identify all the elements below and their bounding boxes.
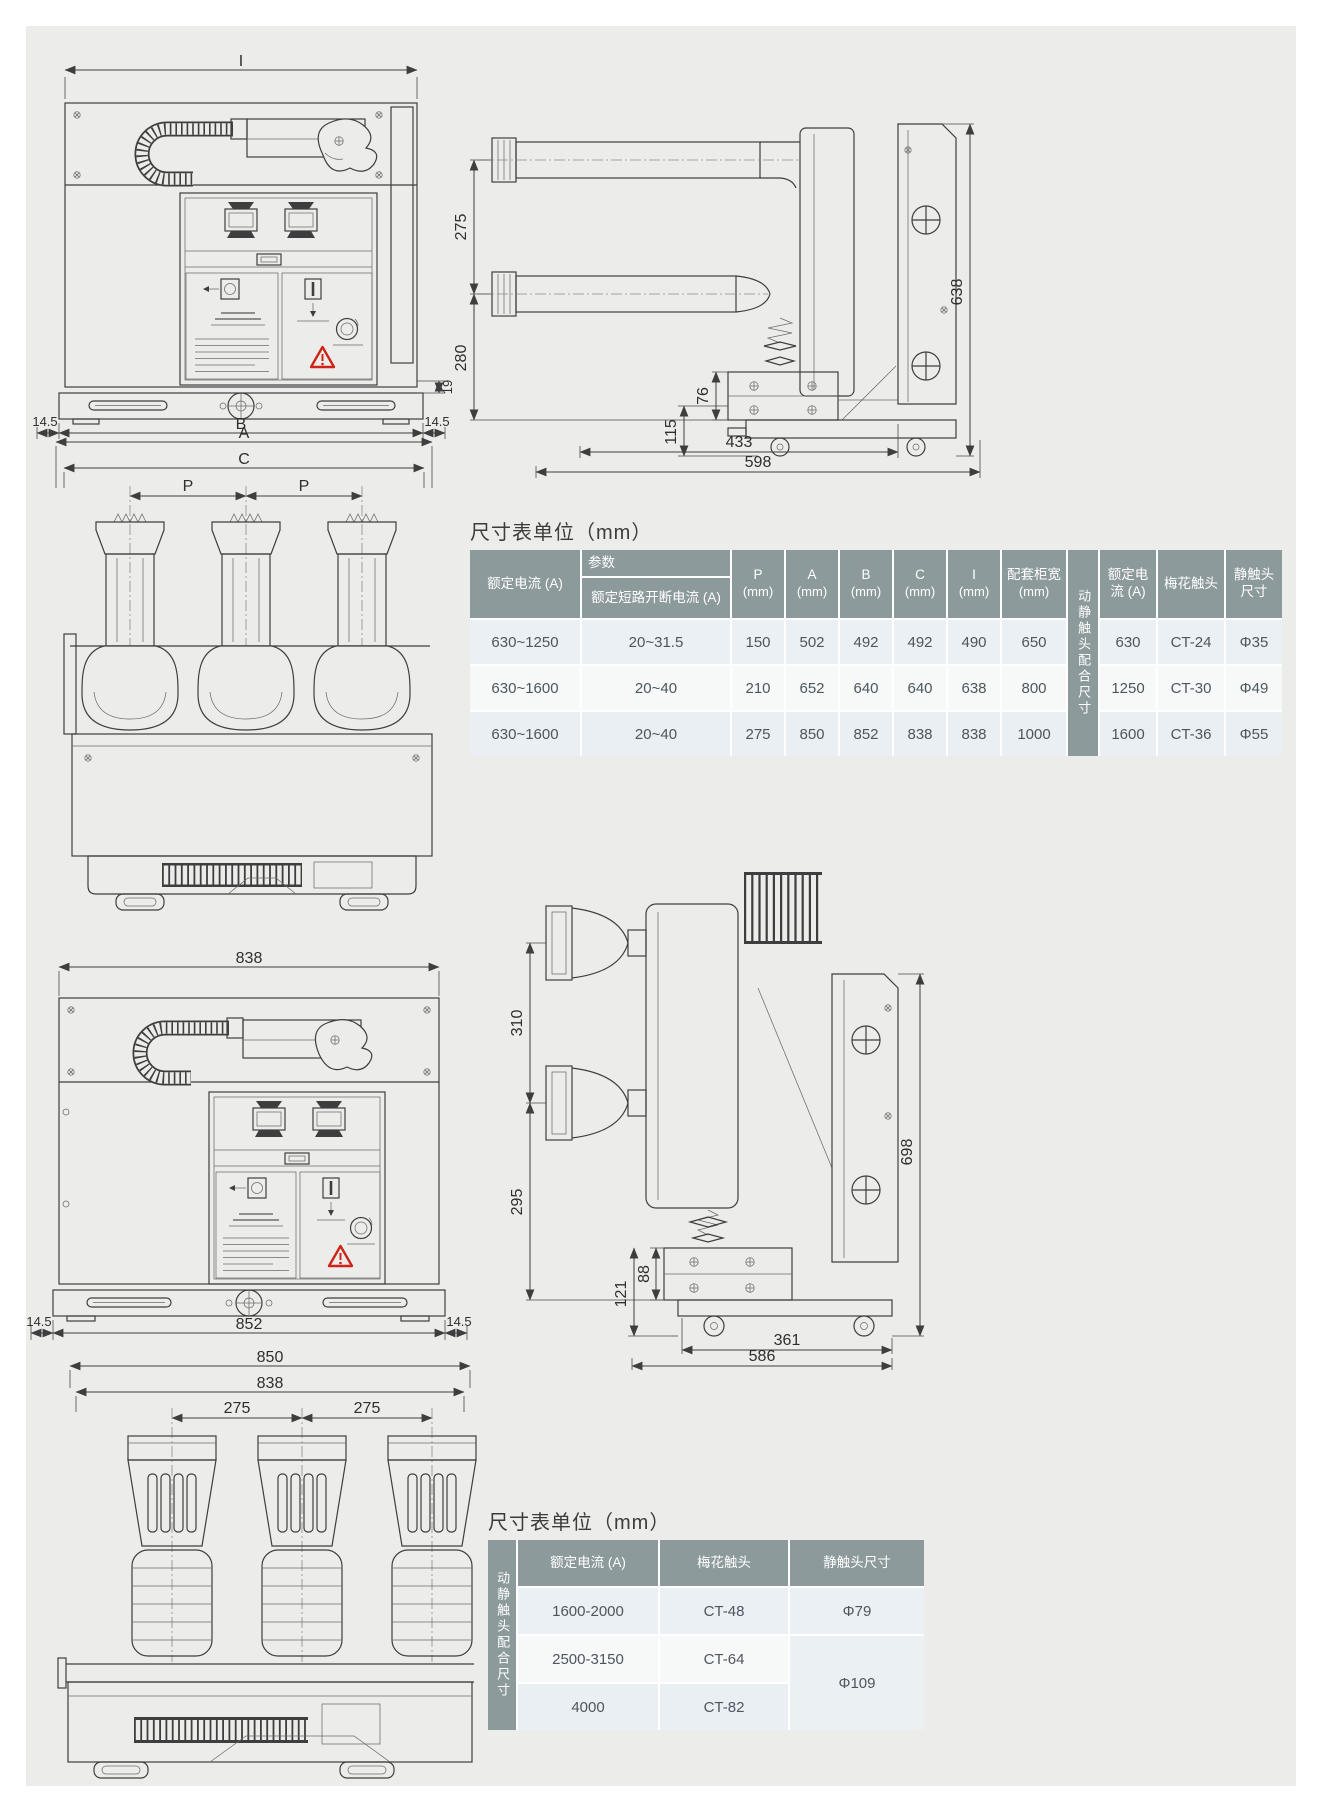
table-cell: 852	[840, 712, 892, 756]
dim-88: 88	[636, 1248, 664, 1300]
indicator-window	[225, 202, 257, 238]
dim-width-top: 838	[59, 950, 439, 996]
col-contact-group: 动静触头配合尺寸	[1068, 550, 1098, 756]
dim-label: 275	[354, 1400, 381, 1417]
dim-label: 14.5	[26, 1314, 51, 1329]
contact-spring	[690, 1210, 726, 1242]
base-plate	[88, 856, 416, 910]
table-cell: CT-48	[660, 1588, 788, 1634]
table-cell: 1000	[1002, 712, 1066, 756]
table-cell: 850	[786, 712, 838, 756]
table-cell: 4000	[518, 1684, 658, 1730]
base-truck	[728, 420, 956, 456]
dim-label: 838	[257, 1375, 284, 1392]
dim-310: 310	[509, 943, 546, 1103]
table-cell: 1250	[1100, 666, 1156, 710]
pole-body	[646, 904, 832, 1208]
breaker-body	[53, 998, 445, 1321]
table-cell: CT-36	[1158, 712, 1224, 756]
table-cell: 630~1600	[470, 712, 580, 756]
table-cell: 492	[840, 620, 892, 664]
drawing-side-view-1: 275 280 76 115 638 433 598	[428, 80, 988, 482]
dim-label: 76	[695, 387, 712, 405]
dim-label: 14.5	[446, 1314, 471, 1329]
param-header-group: 额定电流 (A) 参数 额定短路开断电流 (A)	[470, 550, 730, 618]
drawing-top-view-1: A C P P	[42, 428, 442, 940]
controls	[297, 279, 363, 345]
flexible-conduit	[142, 119, 247, 179]
terminal-bracket	[664, 1248, 792, 1300]
upper-bushing	[478, 138, 800, 182]
dim-label: 361	[774, 1332, 801, 1349]
indicator-window	[253, 1101, 285, 1137]
table-cell: 210	[732, 666, 784, 710]
table-cell: 630	[1100, 620, 1156, 664]
contact-spring	[764, 318, 796, 365]
table-cell-merged: Φ109	[790, 1636, 924, 1730]
pole-column	[760, 128, 854, 396]
table-cell: 838	[894, 712, 946, 756]
col-plum-contact: 梅花触头	[660, 1540, 788, 1586]
drawing-front-view-2: 838	[23, 952, 475, 1356]
dim-586: 586	[632, 1348, 892, 1370]
manual-knob	[351, 1218, 372, 1239]
warning-triangle-icon	[329, 1246, 352, 1266]
indicator-window	[313, 1101, 345, 1137]
indicator-window	[285, 202, 317, 238]
front-panel	[180, 193, 377, 385]
dim-label: 638	[949, 279, 966, 306]
table-cell: 2500-3150	[518, 1636, 658, 1682]
dim-label: P	[299, 478, 310, 495]
frame-rails	[58, 1658, 474, 1688]
flexible-conduit	[140, 1018, 243, 1078]
dim-C: C	[64, 451, 424, 488]
table-cell: 490	[948, 620, 1000, 664]
drawing-side-view-2: 310 295 88 121 698 361 586	[492, 848, 932, 1374]
col-P: P(mm)	[732, 550, 784, 618]
upper-dome-bushing	[546, 906, 646, 980]
dim-label: 275	[224, 1400, 251, 1417]
nameplate	[223, 1178, 289, 1271]
frame-plate	[842, 124, 956, 420]
drawing-front-view-1: I	[25, 55, 460, 447]
front-panel	[209, 1092, 385, 1284]
lower-dome-bushing	[546, 1066, 646, 1140]
pole-bell	[82, 646, 178, 730]
table-cell: 838	[948, 712, 1000, 756]
table-cell: CT-30	[1158, 666, 1224, 710]
warning-triangle-icon	[311, 347, 334, 367]
dimension-table-2: 动静触头配合尺寸 额定电流 (A) 梅花触头 静触头尺寸 1600-2000 C…	[488, 1540, 924, 1730]
dim-275: 275	[453, 160, 492, 294]
table-cell: 640	[840, 666, 892, 710]
table-cell: Φ79	[790, 1588, 924, 1634]
dim-label: 121	[613, 1281, 630, 1308]
terminal-bracket	[728, 372, 898, 420]
param-label: 参数	[582, 550, 730, 576]
table-cell: 1600-2000	[518, 1588, 658, 1634]
lower-bushing	[478, 272, 770, 316]
manual-knob	[337, 319, 358, 340]
table-cell: 20~40	[582, 712, 730, 756]
dim-label: 310	[509, 1010, 526, 1037]
pole-bell	[314, 646, 410, 730]
base-truck	[678, 1300, 892, 1336]
frame-plate	[832, 974, 898, 1262]
table-cell: 800	[1002, 666, 1066, 710]
dim-label: A	[239, 425, 250, 442]
table-cell: Φ55	[1226, 712, 1282, 756]
col-A: A(mm)	[786, 550, 838, 618]
col-contact-group: 动静触头配合尺寸	[488, 1540, 516, 1730]
pole-bell	[198, 646, 294, 730]
dim-label: 598	[745, 454, 772, 471]
table-cell: 20~40	[582, 666, 730, 710]
dim-width-top: I	[65, 53, 417, 99]
table-cell: Φ49	[1226, 666, 1282, 710]
table-cell: 630~1600	[470, 666, 580, 710]
dim-label: 275	[453, 214, 470, 241]
table-cell: 652	[786, 666, 838, 710]
col-cabinet-width: 配套柜宽(mm)	[1002, 550, 1066, 618]
table2-title: 尺寸表单位（mm）	[488, 1506, 670, 1535]
drawing-bottom-view-2: 850 838 275 275	[10, 1352, 490, 1804]
dim-label: 852	[236, 1316, 263, 1333]
dim-label: 850	[257, 1349, 284, 1366]
table-cell: 150	[732, 620, 784, 664]
dim-label: 433	[726, 434, 753, 451]
dim-label: 115	[663, 419, 680, 445]
dim-label: 88	[636, 1265, 653, 1283]
table-cell: 492	[894, 620, 946, 664]
table-cell: CT-64	[660, 1636, 788, 1682]
operating-handle	[247, 119, 377, 171]
nameplate	[195, 279, 269, 372]
dimension-table-1: 额定电流 (A) 参数 额定短路开断电流 (A) P(mm) A(mm) B(m…	[470, 550, 1282, 756]
col-C: C(mm)	[894, 550, 946, 618]
table-cell: 1600	[1100, 712, 1156, 756]
dim-label: 838	[236, 950, 263, 967]
col-B: B(mm)	[840, 550, 892, 618]
dim-label: 280	[453, 345, 470, 372]
dim-label: 586	[749, 1348, 776, 1365]
breaker-body	[59, 103, 423, 424]
table-cell: 630~1250	[470, 620, 580, 664]
col-static-contact: 静触头尺寸	[1226, 550, 1282, 618]
dim-label: P	[183, 478, 194, 495]
col-rated-current: 额定电流 (A)	[470, 550, 580, 618]
table-cell: CT-24	[1158, 620, 1224, 664]
table-cell: 20~31.5	[582, 620, 730, 664]
table-cell: 502	[786, 620, 838, 664]
dim-base: 14.5 852 14.5	[26, 1314, 471, 1340]
col-breaking-current: 额定短路开断电流 (A)	[582, 578, 730, 618]
col-rated-current-2: 额定电流 (A)	[1100, 550, 1156, 618]
col-static-contact: 静触头尺寸	[790, 1540, 924, 1586]
dim-121: 121	[613, 1248, 678, 1336]
col-plum-contact: 梅花触头	[1158, 550, 1224, 618]
table-cell: CT-82	[660, 1684, 788, 1730]
table-cell: 638	[948, 666, 1000, 710]
mechanism-housing	[72, 734, 432, 856]
controls	[317, 1178, 375, 1244]
table-cell: 275	[732, 712, 784, 756]
dim-label: I	[239, 53, 243, 70]
base-plate	[68, 1682, 472, 1778]
table-cell: 640	[894, 666, 946, 710]
dim-label: 295	[509, 1189, 526, 1216]
dim-label: C	[238, 451, 250, 468]
dim-280: 280	[453, 294, 728, 420]
table-cell: Φ35	[1226, 620, 1282, 664]
dim-76: 76	[695, 372, 728, 420]
dim-433: 433	[580, 424, 898, 458]
operating-handle	[243, 1020, 372, 1070]
table1-title: 尺寸表单位（mm）	[470, 516, 652, 545]
dim-838: 838	[76, 1375, 464, 1412]
dim-label: 698	[899, 1139, 916, 1166]
table-cell: 650	[1002, 620, 1066, 664]
dim-698: 698	[892, 974, 924, 1336]
dim-638: 638	[942, 124, 974, 456]
dim-label: 14.5	[32, 414, 57, 429]
col-I: I(mm)	[948, 550, 1000, 618]
col-rated-current: 额定电流 (A)	[518, 1540, 658, 1586]
